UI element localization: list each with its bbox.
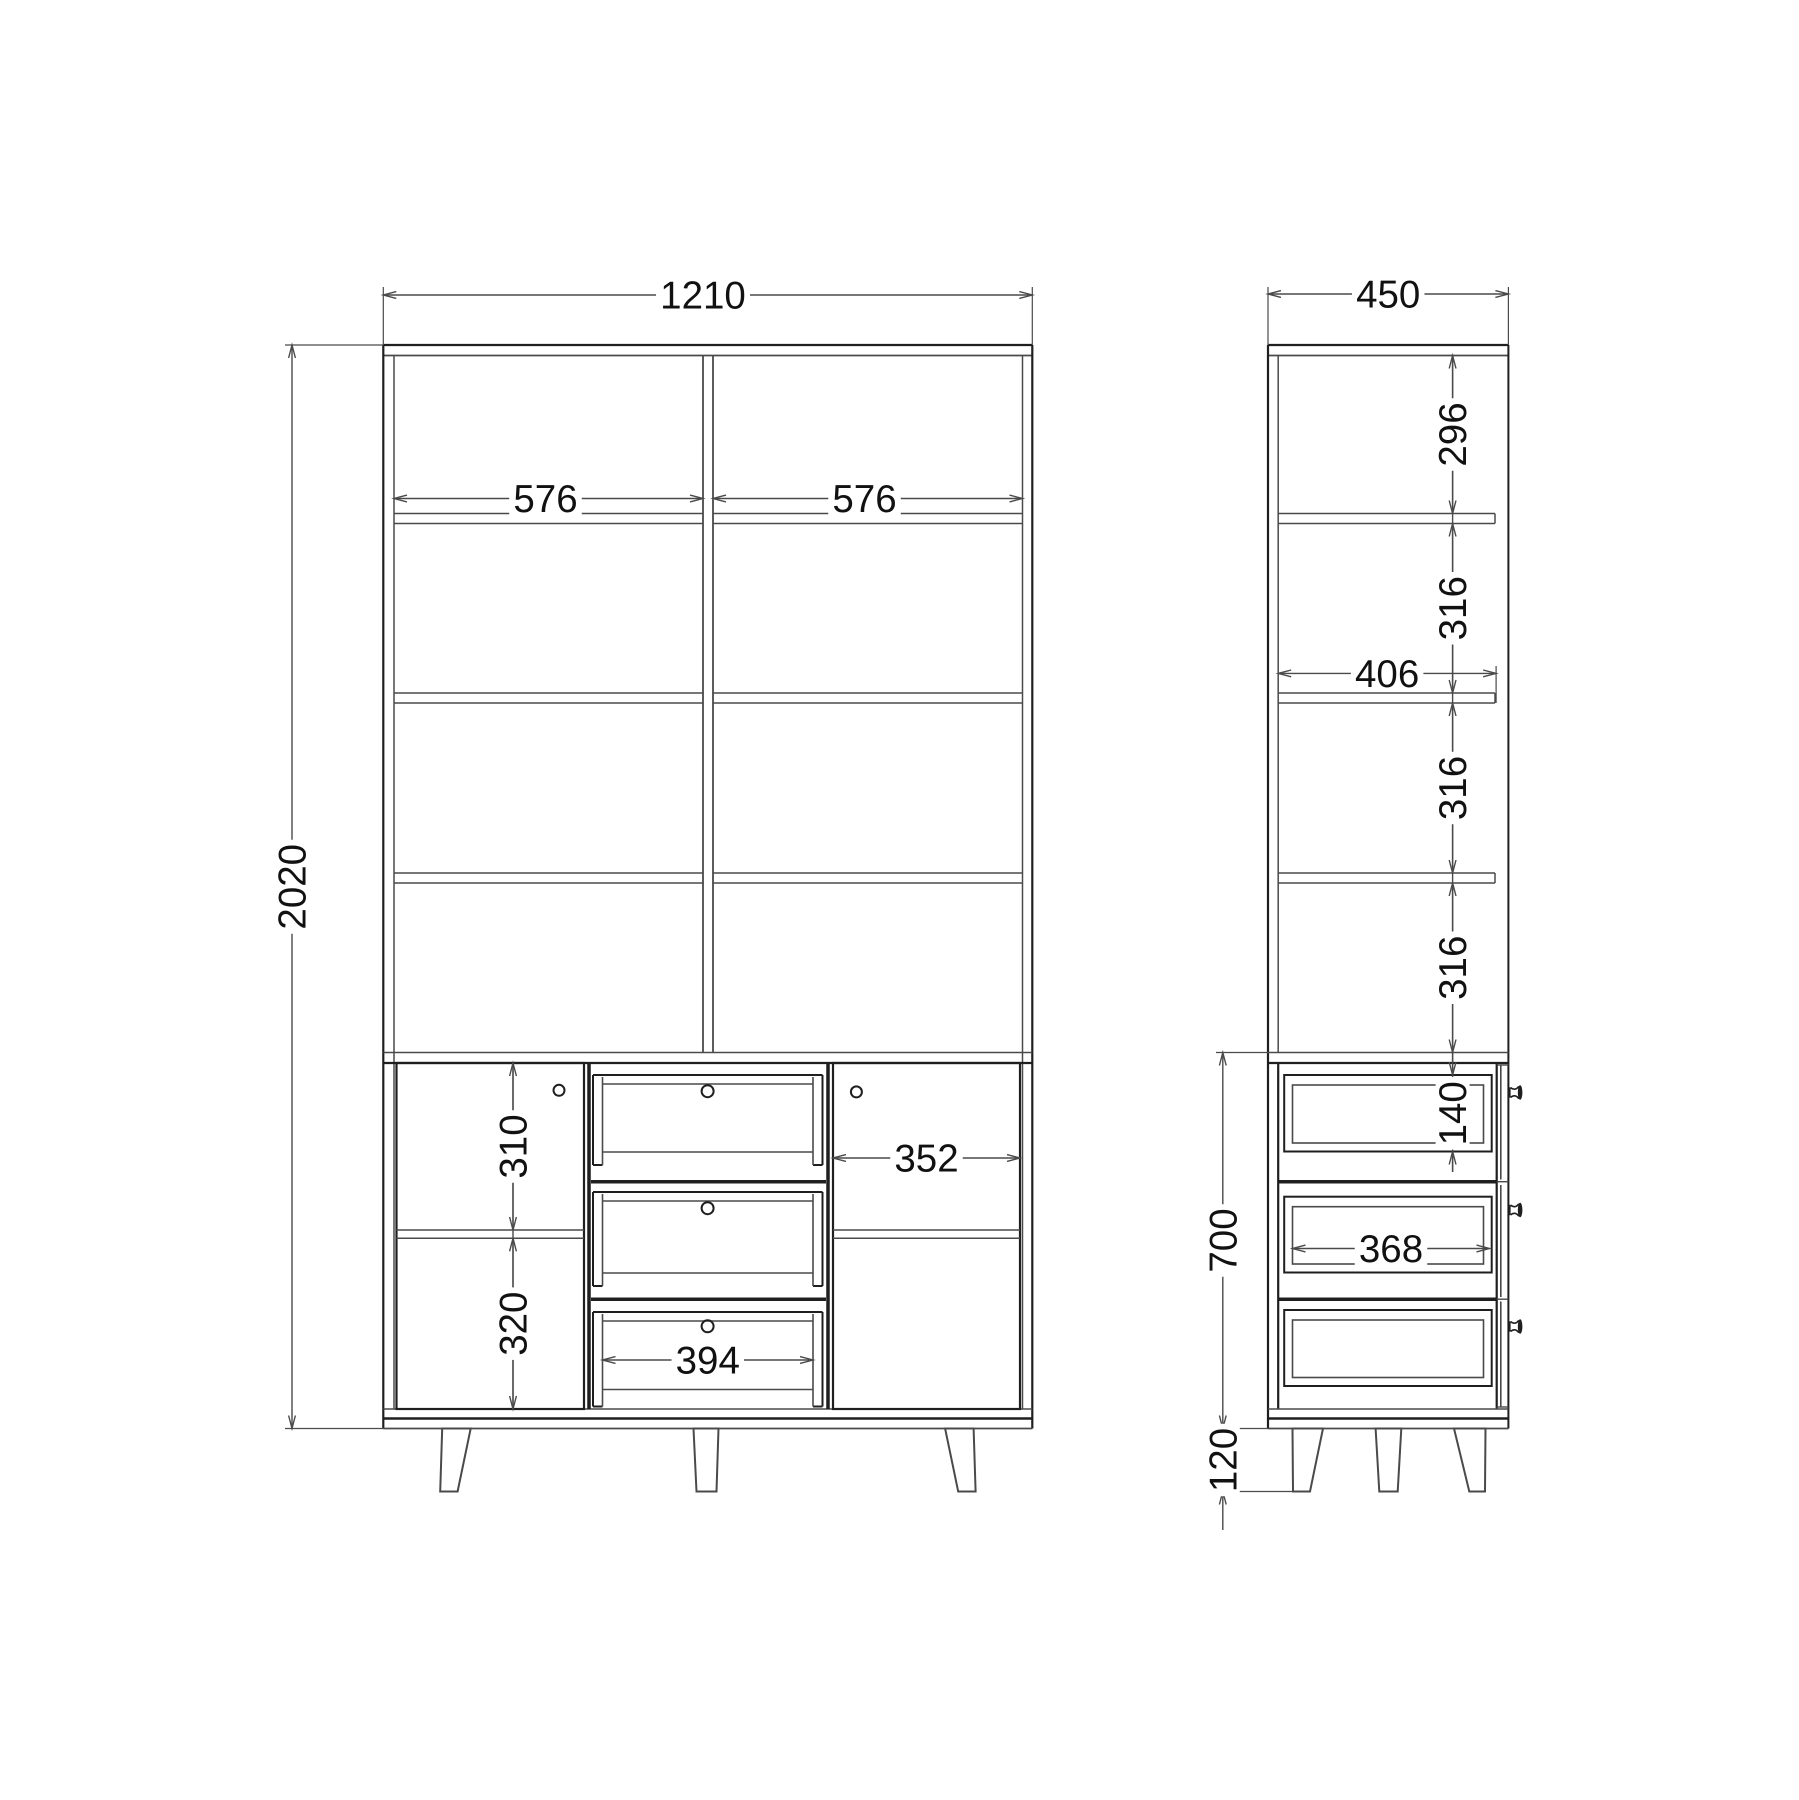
svg-text:368: 368 (1359, 1228, 1423, 1271)
svg-text:406: 406 (1355, 653, 1419, 696)
svg-text:2020: 2020 (272, 844, 315, 930)
svg-text:320: 320 (493, 1292, 536, 1356)
svg-text:700: 700 (1202, 1208, 1245, 1272)
svg-text:576: 576 (513, 478, 577, 521)
svg-text:1210: 1210 (660, 275, 746, 318)
svg-text:316: 316 (1432, 936, 1475, 1000)
svg-text:352: 352 (894, 1138, 958, 1181)
svg-text:316: 316 (1432, 756, 1475, 820)
svg-text:450: 450 (1356, 274, 1420, 317)
svg-text:120: 120 (1202, 1428, 1245, 1492)
svg-text:310: 310 (493, 1114, 536, 1178)
svg-text:576: 576 (832, 478, 896, 521)
svg-text:296: 296 (1432, 402, 1475, 466)
svg-text:140: 140 (1432, 1081, 1475, 1145)
svg-text:316: 316 (1432, 576, 1475, 640)
svg-text:394: 394 (676, 1340, 740, 1383)
